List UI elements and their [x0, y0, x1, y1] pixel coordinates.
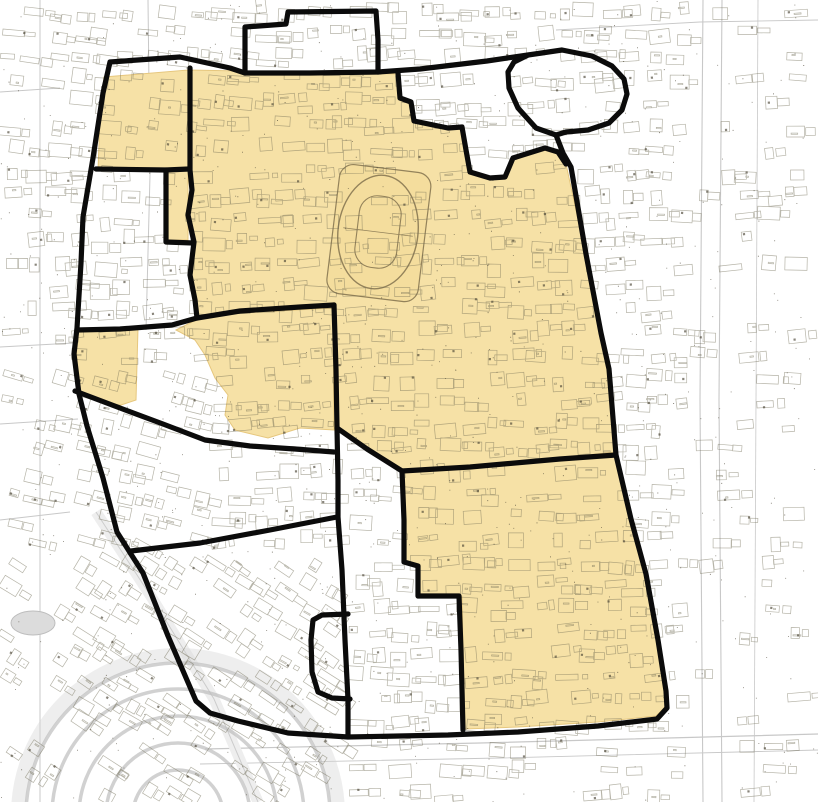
pond: [11, 611, 55, 635]
map-viewport: [0, 0, 818, 802]
boundary-nw-divider-horizontal: [96, 169, 189, 170]
cadastral-map-canvas: [0, 0, 818, 802]
